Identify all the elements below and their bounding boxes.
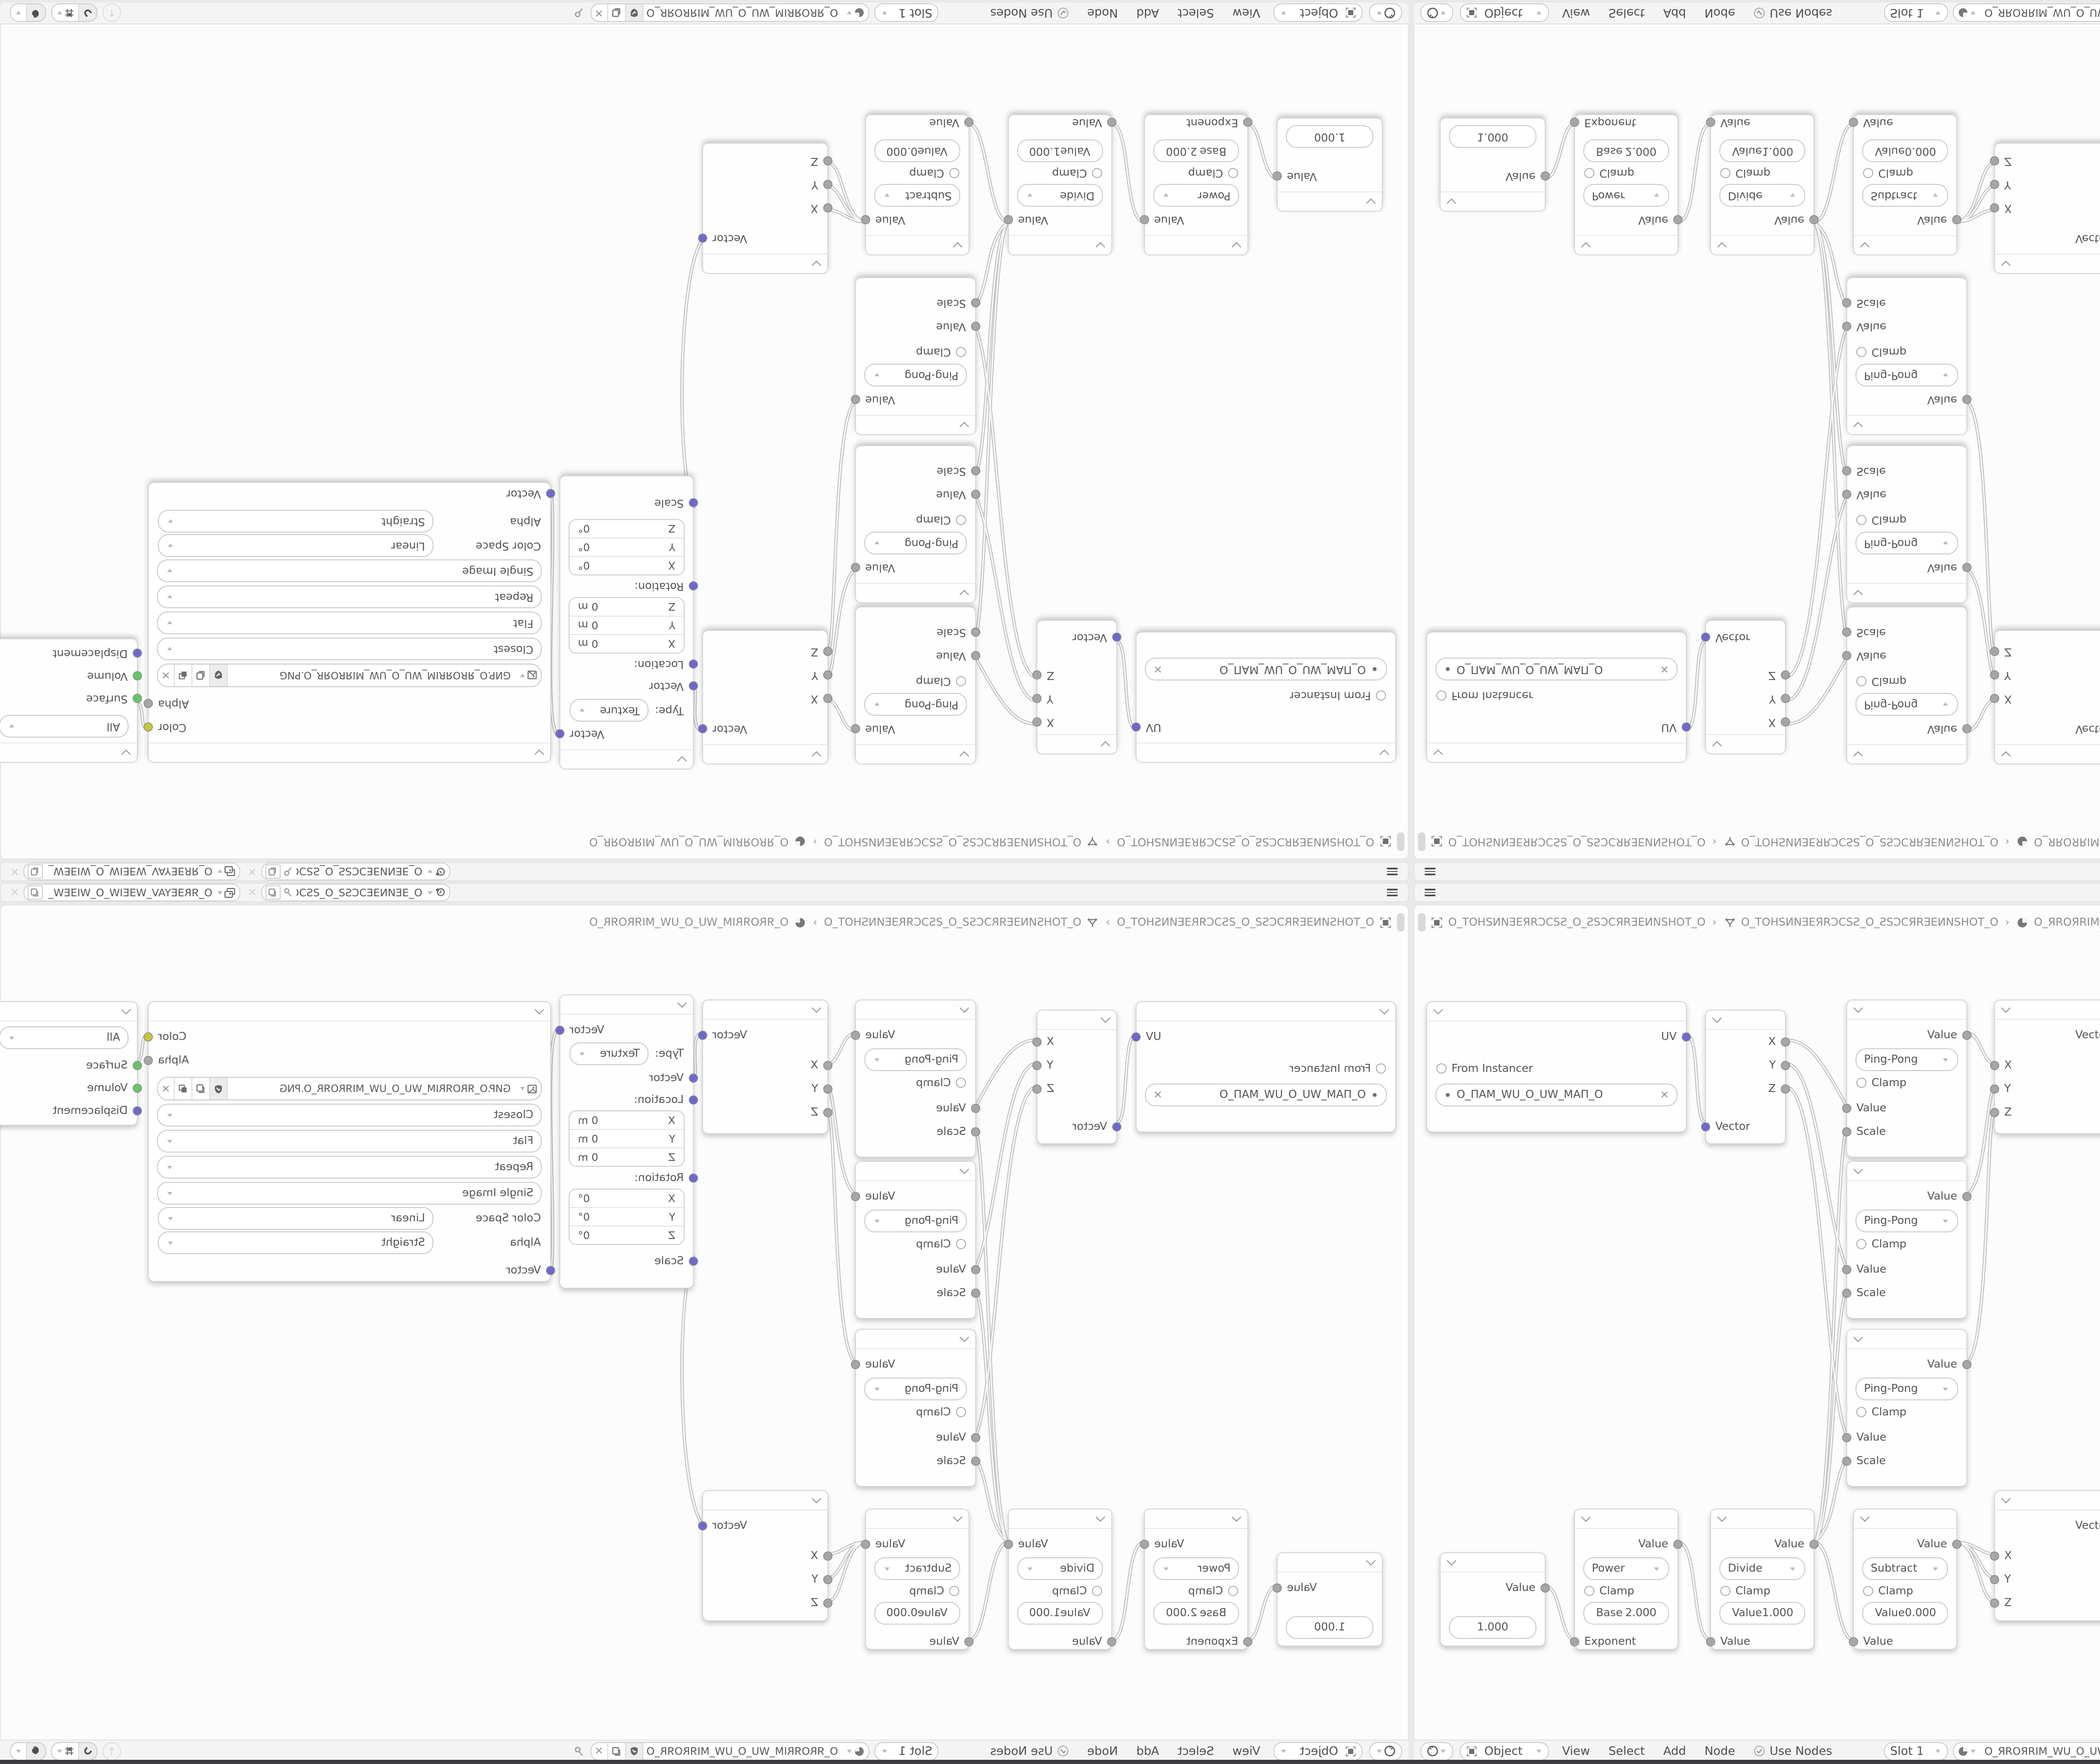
socket-value-output[interactable]: [851, 1360, 860, 1369]
node-collapse-button[interactable]: [856, 415, 975, 434]
math-operation-select[interactable]: Divide: [1017, 1557, 1103, 1580]
node-math-power[interactable]: Value Power Clamp Base2.000 Exponent: [1144, 1509, 1248, 1650]
node-collapse-button[interactable]: [1037, 734, 1116, 753]
node-collapse-button[interactable]: [1854, 235, 1956, 255]
socket-x-input[interactable]: [1990, 694, 1999, 703]
node-collapse-button[interactable]: [1847, 1000, 1966, 1020]
material-datablock-selector[interactable]: O_ЯROЯRIM_WU_O_UW_MIЯROЯR_O ×: [1953, 1742, 2100, 1760]
socket-value-output[interactable]: [1140, 1539, 1149, 1549]
unlink-image-button[interactable]: ×: [158, 1078, 175, 1100]
fake-user-toggle[interactable]: [625, 1743, 643, 1759]
menu-add[interactable]: Add: [1137, 6, 1159, 20]
socket-value-output[interactable]: [851, 724, 860, 734]
socket-color-output[interactable]: [144, 1032, 153, 1041]
material-name[interactable]: O_ЯROЯRIM_WU_O_UW_MIЯROЯR_O: [643, 1745, 841, 1757]
socket-value-output[interactable]: [1004, 215, 1013, 225]
location-x-field[interactable]: X0 m: [570, 635, 684, 653]
pin-icon[interactable]: [282, 866, 293, 877]
copy-scene-button[interactable]: [265, 864, 281, 879]
color-space-select[interactable]: Linear: [158, 1207, 433, 1230]
menu-node[interactable]: Node: [1087, 6, 1118, 20]
new-image-button[interactable]: [192, 664, 210, 686]
location-x-field[interactable]: X0 m: [570, 1111, 684, 1129]
socket-scale-input[interactable]: [971, 1456, 980, 1465]
socket-vector-output[interactable]: [698, 1030, 707, 1039]
socket-x-input[interactable]: [1990, 1551, 1999, 1560]
node-combine-xyz-bottom[interactable]: Vector X Y Z: [702, 143, 828, 274]
editor-corner-handle[interactable]: [1397, 832, 1404, 851]
menu-node[interactable]: Node: [1704, 1744, 1735, 1758]
math-operation-select[interactable]: Ping-Pong: [1856, 1378, 1958, 1400]
node-collapse-button[interactable]: [1706, 1011, 1785, 1030]
material-datablock-selector[interactable]: O_ЯROЯRIM_WU_O_UW_MIЯROЯR_O ×: [1953, 4, 2100, 22]
socket-value-input[interactable]: [1842, 651, 1851, 661]
overlays-dropdown[interactable]: [11, 1743, 27, 1759]
node-collapse-button[interactable]: [1995, 1491, 2100, 1510]
copy-scene-button[interactable]: [265, 885, 281, 900]
socket-x-output[interactable]: [1781, 1037, 1790, 1046]
rotation-y-field[interactable]: Y0°: [570, 1207, 684, 1226]
math-operation-select[interactable]: Ping-Pong: [1856, 693, 1958, 716]
node-collapse-button[interactable]: [856, 744, 975, 764]
socket-z-input[interactable]: [823, 1598, 832, 1607]
menu-select[interactable]: Select: [1609, 1744, 1645, 1758]
node-collapse-button[interactable]: [1137, 1002, 1395, 1021]
clamp-checkbox[interactable]: [956, 1407, 966, 1417]
node-combine-xyz-bottom[interactable]: Vector X Y Z: [1994, 143, 2100, 274]
socket-z-input[interactable]: [1990, 1108, 1999, 1117]
socket-y-output[interactable]: [1781, 1060, 1790, 1070]
menu-select[interactable]: Select: [1178, 1744, 1214, 1758]
socket-value-output[interactable]: [1140, 215, 1149, 225]
alpha-mode-select[interactable]: Straight: [158, 1231, 433, 1254]
menu-node[interactable]: Node: [1704, 6, 1735, 20]
clamp-checkbox[interactable]: [1856, 1407, 1866, 1417]
material-datablock-selector[interactable]: O_ЯROЯRIM_WU_O_UW_MIЯROЯR_O ×: [590, 1742, 869, 1760]
copy-view-layer-button[interactable]: [28, 885, 43, 900]
clamp-checkbox[interactable]: [1856, 1239, 1866, 1249]
overlays-dropdown[interactable]: [11, 5, 27, 21]
unlink-material-button[interactable]: ×: [591, 1743, 608, 1759]
socket-value-output[interactable]: [1962, 1030, 1971, 1039]
node-collapse-button[interactable]: [856, 583, 975, 602]
editor-corner-handle[interactable]: [1397, 913, 1404, 932]
socket-z-input[interactable]: [1990, 1598, 1999, 1607]
socket-vector-output[interactable]: [698, 724, 707, 734]
value-field[interactable]: Value0.000: [1862, 139, 1948, 162]
clear-uv-map-button[interactable]: ×: [1153, 663, 1163, 675]
node-collapse-button[interactable]: [1278, 192, 1382, 211]
material-name[interactable]: O_ЯROЯRIM_WU_O_UW_MIЯROЯR_O: [643, 7, 841, 19]
socket-surface-input[interactable]: [133, 694, 142, 703]
value-field[interactable]: Value1.000: [1719, 1602, 1805, 1625]
clamp-checkbox[interactable]: [1856, 515, 1866, 525]
value-field[interactable]: Value0.000: [1862, 1602, 1948, 1625]
unlink-material-button[interactable]: ×: [591, 5, 608, 21]
socket-value-output[interactable]: [1673, 1539, 1683, 1549]
view-layer-selector[interactable]: O_ЯRƎEYAV_WƎEIW_O_WIƎEW_VAYƎEЯR_O: [24, 863, 240, 880]
clamp-checkbox[interactable]: [1863, 1586, 1873, 1596]
node-math-divide[interactable]: Value Divide Clamp Value1.000 Value: [1008, 114, 1112, 255]
scene-name[interactable]: O_ƎEИNƎEƆCSƧ_O_ƧSƆCƎEИ...: [297, 865, 423, 878]
node-math-pingpong-2[interactable]: Value Ping-Pong Clamp Value Scale: [1846, 445, 1967, 603]
socket-y-input[interactable]: [823, 1084, 832, 1093]
snapping-controls[interactable]: [51, 4, 97, 22]
socket-alpha-output[interactable]: [144, 699, 153, 709]
menu-select[interactable]: Select: [1178, 6, 1214, 20]
go-to-parent-button[interactable]: ↑: [102, 4, 121, 22]
math-operation-select[interactable]: Power: [1583, 1557, 1669, 1580]
browse-image-button[interactable]: [515, 664, 541, 686]
socket-x-input[interactable]: [823, 1060, 832, 1070]
node-math-pingpong-1[interactable]: Value Ping-Pong Clamp Value Scale: [855, 606, 976, 764]
menu-hamburger-icon[interactable]: [1387, 889, 1398, 896]
socket-alpha-output[interactable]: [144, 1055, 153, 1065]
node-math-power[interactable]: Value Power Clamp Base2.000 Exponent: [1574, 1509, 1678, 1650]
image-datablock-selector[interactable]: GИP.O_ЯROЯRIM_WU_O_UW_MIЯROЯR_O.PNG: [157, 1077, 542, 1100]
fake-user-toggle[interactable]: [625, 5, 643, 21]
math-operation-select[interactable]: Subtract: [1862, 184, 1948, 207]
menu-add[interactable]: Add: [1663, 6, 1686, 20]
socket-vector-output[interactable]: [555, 1025, 564, 1034]
color-space-select[interactable]: Linear: [158, 534, 433, 557]
socket-value-output[interactable]: [851, 1030, 860, 1039]
node-mapping[interactable]: Vector Type: Texture Vector Location: X0…: [559, 995, 694, 1289]
from-instancer-checkbox[interactable]: [1376, 1063, 1386, 1074]
node-collapse-button[interactable]: [1995, 744, 2100, 764]
value-field[interactable]: 1.000: [1286, 125, 1373, 148]
use-nodes-checkbox[interactable]: Use Nodes: [1753, 1744, 1832, 1758]
socket-scale-input[interactable]: [971, 1288, 980, 1297]
snap-settings-dropdown[interactable]: [52, 5, 79, 21]
socket-uv-output[interactable]: [1131, 723, 1141, 732]
node-combine-xyz-bottom[interactable]: Vector X Y Z: [1994, 1490, 2100, 1621]
math-operation-select[interactable]: Subtract: [1862, 1557, 1948, 1580]
socket-vector-output[interactable]: [698, 234, 707, 243]
node-collapse-button[interactable]: [1037, 1011, 1116, 1030]
node-material-output[interactable]: All Surface Volume Displacement: [0, 1001, 138, 1126]
socket-scale-input[interactable]: [689, 1256, 698, 1265]
clamp-checkbox[interactable]: [956, 347, 966, 357]
socket-value-output[interactable]: [851, 395, 860, 404]
socket-uv-output[interactable]: [1682, 1032, 1691, 1041]
clear-uv-map-button[interactable]: ×: [1153, 1089, 1163, 1101]
socket-displacement-input[interactable]: [133, 648, 142, 658]
editor-type-selector[interactable]: [1420, 4, 1453, 22]
uv-map-select[interactable]: O_ПAM_WU_O_UW_MAП_O ×: [1145, 658, 1387, 680]
node-math-pingpong-3[interactable]: Value Ping-Pong Clamp Value Scale: [855, 277, 976, 435]
location-z-field[interactable]: Z0 m: [570, 598, 684, 617]
material-slot-select[interactable]: Slot 1: [1884, 1742, 1948, 1760]
extension-select[interactable]: Repeat: [157, 1156, 542, 1179]
pack-image-button[interactable]: [175, 1078, 192, 1100]
node-math-pingpong-3[interactable]: Value Ping-Pong Clamp Value Scale: [1846, 277, 1967, 435]
menu-select[interactable]: Select: [1609, 6, 1645, 20]
editor-type-selector[interactable]: [1369, 4, 1402, 22]
math-operation-select[interactable]: Divide: [1017, 184, 1103, 207]
node-math-pingpong-2[interactable]: Value Ping-Pong Clamp Value Scale: [1846, 1161, 1967, 1319]
go-to-parent-button[interactable]: ↑: [102, 1742, 121, 1760]
socket-y-input[interactable]: [1990, 1575, 1999, 1584]
use-nodes-checkbox[interactable]: Use Nodes: [990, 6, 1070, 20]
socket-x-input[interactable]: [823, 1551, 832, 1560]
clamp-checkbox[interactable]: [956, 515, 966, 525]
uv-map-select[interactable]: O_ПAM_WU_O_UW_MAП_O ×: [1436, 1084, 1677, 1106]
socket-exponent-input[interactable]: [1243, 1637, 1252, 1646]
rotation-x-field[interactable]: X0°: [570, 557, 684, 575]
node-math-pingpong-3[interactable]: Value Ping-Pong Clamp Value Scale: [855, 1329, 976, 1487]
node-collapse-button[interactable]: [856, 1000, 975, 1020]
use-nodes-checkbox[interactable]: Use Nodes: [990, 1744, 1070, 1758]
socket-location-input[interactable]: [689, 1095, 698, 1104]
alpha-mode-select[interactable]: Straight: [158, 510, 433, 533]
node-collapse-button[interactable]: [1995, 254, 2100, 273]
snap-toggle[interactable]: [79, 1743, 97, 1759]
node-collapse-button[interactable]: [560, 749, 693, 769]
node-uv-map[interactable]: UV From Instancer O_ПAM_WU_O_UW_MAП_O ×: [1426, 1001, 1687, 1132]
from-instancer-checkbox[interactable]: [1436, 1063, 1446, 1074]
node-math-pingpong-2[interactable]: Value Ping-Pong Clamp Value Scale: [855, 445, 976, 603]
math-operation-select[interactable]: Power: [1153, 1557, 1239, 1580]
editor-type-selector[interactable]: [1369, 1742, 1402, 1760]
socket-value-output[interactable]: [861, 215, 870, 225]
browse-image-button[interactable]: [515, 1078, 541, 1100]
shader-type-select[interactable]: Object: [1274, 1742, 1362, 1760]
value-field[interactable]: Value1.000: [1017, 1602, 1103, 1625]
base-field[interactable]: Base2.000: [1153, 139, 1239, 162]
rotation-y-field[interactable]: Y0°: [570, 538, 684, 557]
node-uv-map[interactable]: UV From Instancer O_ПAM_WU_O_UW_MAП_O ×: [1426, 632, 1687, 763]
rotation-z-field[interactable]: Z0°: [570, 520, 684, 538]
node-separate-xyz[interactable]: X Y Z Vector: [1037, 620, 1117, 754]
unlink-scene-button[interactable]: ×: [248, 886, 257, 899]
value-field[interactable]: Value1.000: [1719, 139, 1805, 162]
rotation-x-field[interactable]: X0°: [570, 1189, 684, 1207]
socket-surface-input[interactable]: [133, 1061, 142, 1070]
node-value[interactable]: Value 1.000: [1277, 1552, 1383, 1646]
socket-value-output[interactable]: [851, 1192, 860, 1201]
socket-volume-input[interactable]: [133, 671, 142, 680]
node-collapse-button[interactable]: [1575, 235, 1677, 255]
image-name[interactable]: GИP.O_ЯROЯRIM_WU_O_UW_MIЯROЯR_O.PNG: [228, 1083, 515, 1095]
material-slot-select[interactable]: Slot 1: [874, 1742, 938, 1760]
use-nodes-checkbox[interactable]: Use Nodes: [1753, 6, 1832, 20]
clamp-checkbox[interactable]: [1228, 168, 1238, 178]
clamp-checkbox[interactable]: [1720, 168, 1730, 178]
socket-y-input[interactable]: [1990, 671, 1999, 680]
node-collapse-button[interactable]: [856, 1330, 975, 1349]
projection-select[interactable]: Flat: [157, 612, 542, 634]
socket-value-output[interactable]: [1952, 1539, 1961, 1549]
remove-view-layer-button[interactable]: ×: [10, 886, 19, 899]
socket-exponent-input[interactable]: [1570, 1637, 1579, 1646]
socket-value-input[interactable]: [1842, 490, 1851, 499]
node-collapse-button[interactable]: [1995, 1000, 2100, 1020]
node-separate-xyz[interactable]: X Y Z Vector: [1705, 620, 1786, 754]
math-operation-select[interactable]: Subtract: [874, 184, 960, 207]
node-image-texture[interactable]: Color Alpha GИP.O_ЯROЯRIM_WU_O_UW_MIЯROЯ…: [148, 482, 551, 763]
clamp-checkbox[interactable]: [1856, 1078, 1866, 1088]
node-math-subtract[interactable]: Value Subtract Clamp Value0.000 Value: [865, 114, 969, 255]
math-operation-select[interactable]: Ping-Pong: [864, 1210, 967, 1232]
node-collapse-button[interactable]: [149, 1002, 550, 1021]
math-operation-select[interactable]: Ping-Pong: [864, 1048, 967, 1071]
node-math-subtract[interactable]: Value Subtract Clamp Value0.000 Value: [1853, 1509, 1957, 1650]
node-collapse-button[interactable]: [1441, 1553, 1545, 1572]
socket-scale-input[interactable]: [1842, 1288, 1851, 1297]
clamp-checkbox[interactable]: [949, 1586, 959, 1596]
extension-select[interactable]: Repeat: [157, 585, 542, 608]
clamp-checkbox[interactable]: [1863, 168, 1873, 178]
menu-add[interactable]: Add: [1137, 1744, 1159, 1758]
clamp-checkbox[interactable]: [1856, 676, 1866, 686]
menu-node[interactable]: Node: [1087, 1744, 1118, 1758]
node-collapse-button[interactable]: [1711, 1509, 1814, 1529]
socket-value-input[interactable]: [1842, 322, 1851, 331]
math-operation-select[interactable]: Ping-Pong: [864, 532, 967, 554]
node-collapse-button[interactable]: [1711, 235, 1814, 255]
math-operation-select[interactable]: Ping-Pong: [864, 364, 967, 386]
socket-value-output[interactable]: [1004, 1539, 1013, 1549]
location-z-field[interactable]: Z0 m: [570, 1147, 684, 1166]
node-collapse-button[interactable]: [1847, 583, 1966, 602]
node-math-power[interactable]: Value Power Clamp Base2.000 Exponent: [1144, 114, 1248, 255]
from-instancer-checkbox[interactable]: [1376, 690, 1386, 701]
source-select[interactable]: Single Image: [157, 1182, 542, 1205]
clamp-checkbox[interactable]: [1092, 168, 1102, 178]
socket-value-input[interactable]: [971, 1265, 980, 1274]
socket-vector-output[interactable]: [555, 730, 564, 739]
clamp-checkbox[interactable]: [1228, 1586, 1238, 1596]
math-operation-select[interactable]: Divide: [1719, 1557, 1805, 1580]
browse-material-button[interactable]: [1954, 1743, 1981, 1759]
menu-hamburger-icon[interactable]: [1425, 889, 1436, 896]
node-collapse-button[interactable]: [560, 995, 693, 1015]
node-collapse-button[interactable]: [1145, 235, 1247, 255]
socket-exponent-input[interactable]: [1570, 118, 1579, 127]
socket-displacement-input[interactable]: [133, 1106, 142, 1116]
node-collapse-button[interactable]: [1575, 1509, 1677, 1529]
overlays-controls[interactable]: [10, 1742, 46, 1760]
uv-map-select[interactable]: O_ПAM_WU_O_UW_MAП_O ×: [1436, 658, 1677, 680]
menu-view[interactable]: View: [1232, 6, 1260, 20]
socket-z-input[interactable]: [1990, 647, 1999, 656]
node-combine-xyz-top[interactable]: Vector X Y Z: [702, 630, 828, 764]
from-instancer-checkbox[interactable]: [1436, 690, 1446, 701]
node-value[interactable]: Value 1.000: [1277, 118, 1383, 212]
pin-icon[interactable]: [572, 1745, 584, 1757]
math-operation-select[interactable]: Divide: [1719, 184, 1805, 207]
overlays-toggle[interactable]: [27, 5, 45, 21]
output-target-select[interactable]: All: [0, 1026, 129, 1049]
socket-scale-input[interactable]: [971, 1127, 980, 1136]
overlays-controls[interactable]: [10, 4, 46, 22]
socket-vector-input[interactable]: [689, 1073, 698, 1082]
location-y-field[interactable]: Y0 m: [570, 1129, 684, 1147]
node-separate-xyz[interactable]: X Y Z Vector: [1705, 1010, 1786, 1144]
socket-vector-input[interactable]: [546, 1265, 555, 1275]
node-collapse-button[interactable]: [856, 1162, 975, 1181]
menu-add[interactable]: Add: [1663, 1744, 1686, 1758]
scene-name[interactable]: O_ƎEИNƎEƆCSƧ_O_ƧSƆCƎEИ...: [297, 886, 423, 899]
math-operation-select[interactable]: Ping-Pong: [1856, 532, 1958, 554]
pin-icon[interactable]: [282, 887, 293, 898]
node-collapse-button[interactable]: [1137, 743, 1395, 762]
scene-selector[interactable]: O_ƎEИNƎEƆCSƧ_O_ƧSƆCƎEИ...: [261, 884, 450, 901]
browse-material-button[interactable]: [841, 5, 868, 21]
socket-z-input[interactable]: [1990, 157, 1999, 166]
node-collapse-button[interactable]: [1009, 235, 1111, 255]
socket-value-input[interactable]: [1842, 1103, 1851, 1113]
location-y-field[interactable]: Y0 m: [570, 617, 684, 635]
node-collapse-button[interactable]: [703, 254, 827, 273]
node-collapse-button[interactable]: [1427, 743, 1686, 762]
view-layer-name[interactable]: O_ЯRƎEYAV_WƎEIW_O_WIƎEW_VAYƎEЯR_O: [48, 865, 213, 878]
clamp-checkbox[interactable]: [1584, 1586, 1594, 1596]
value-field[interactable]: Value0.000: [874, 139, 960, 162]
material-datablock-selector[interactable]: O_ЯROЯRIM_WU_O_UW_MIЯROЯR_O ×: [590, 4, 869, 22]
socket-value-output[interactable]: [1962, 1192, 1971, 1201]
source-select[interactable]: Single Image: [157, 559, 542, 582]
socket-value-input[interactable]: [1842, 1433, 1851, 1442]
math-operation-select[interactable]: Power: [1583, 184, 1669, 207]
socket-x-input[interactable]: [1990, 204, 1999, 213]
node-combine-xyz-top[interactable]: Vector X Y Z: [1994, 630, 2100, 764]
math-operation-select[interactable]: Ping-Pong: [1856, 1210, 1958, 1232]
rotation-z-field[interactable]: Z0°: [570, 1226, 684, 1244]
socket-z-output[interactable]: [1781, 1084, 1790, 1093]
socket-value-output[interactable]: [851, 563, 860, 572]
node-collapse-button[interactable]: [703, 1000, 827, 1020]
scene-selector[interactable]: O_ƎEИNƎEƆCSƧ_O_ƧSƆCƎEИ...: [261, 863, 450, 880]
base-field[interactable]: Base2.000: [1583, 1602, 1669, 1625]
new-material-button[interactable]: [608, 1743, 625, 1759]
socket-volume-input[interactable]: [133, 1084, 142, 1093]
value-field[interactable]: 1.000: [1449, 1616, 1536, 1639]
menu-view[interactable]: View: [1232, 1744, 1260, 1758]
socket-value-output[interactable]: [1273, 1583, 1282, 1592]
overlays-toggle[interactable]: [27, 1743, 45, 1759]
node-collapse-button[interactable]: [703, 744, 827, 764]
new-image-button[interactable]: [192, 1078, 210, 1100]
fake-user-toggle[interactable]: [210, 664, 228, 686]
image-datablock-selector[interactable]: GИP.O_ЯROЯRIM_WU_O_UW_MIЯROЯR_O.PNG: [157, 664, 542, 687]
node-collapse-button[interactable]: [0, 1002, 137, 1021]
socket-value-input[interactable]: [971, 1433, 980, 1442]
node-separate-xyz[interactable]: X Y Z Vector: [1037, 1010, 1117, 1144]
node-collapse-button[interactable]: [1441, 192, 1545, 211]
node-uv-map[interactable]: UV From Instancer O_ПAM_WU_O_UW_MAП_O ×: [1136, 632, 1396, 763]
socket-value-output[interactable]: [1541, 1583, 1550, 1592]
material-slot-select[interactable]: Slot 1: [1884, 4, 1948, 22]
node-math-divide[interactable]: Value Divide Clamp Value1.000 Value: [1710, 114, 1814, 255]
uv-map-select[interactable]: O_ПAM_WU_O_UW_MAП_O ×: [1145, 1084, 1387, 1106]
node-math-divide[interactable]: Value Divide Clamp Value1.000 Value: [1710, 1509, 1814, 1650]
unlink-image-button[interactable]: ×: [158, 664, 175, 686]
clamp-checkbox[interactable]: [1092, 1586, 1102, 1596]
socket-vector-input[interactable]: [1112, 1122, 1121, 1131]
socket-y-output[interactable]: [1032, 694, 1042, 703]
editor-corner-handle[interactable]: [1418, 913, 1425, 932]
output-target-select[interactable]: All: [0, 715, 129, 738]
node-material-output[interactable]: All Surface Volume Displacement: [0, 638, 138, 763]
socket-value-output[interactable]: [1809, 1539, 1819, 1549]
socket-scale-input[interactable]: [1842, 1127, 1851, 1136]
socket-value-input[interactable]: [964, 1637, 974, 1646]
math-operation-select[interactable]: Ping-Pong: [864, 693, 967, 716]
socket-x-output[interactable]: [1032, 1037, 1042, 1046]
browse-material-button[interactable]: [1954, 5, 1981, 21]
